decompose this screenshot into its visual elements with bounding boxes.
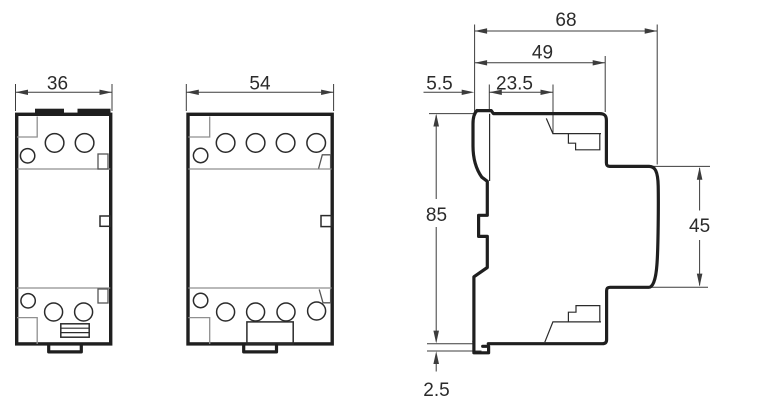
dim-label-54: 54 <box>249 74 271 95</box>
arrowhead-left <box>475 28 488 33</box>
din-foot <box>244 345 277 352</box>
arrowhead-down <box>433 331 439 344</box>
arrowhead-up <box>697 167 703 180</box>
top-tab-left <box>35 109 64 114</box>
dim-label-2-5: 2.5 <box>423 380 449 401</box>
top-tab-right <box>78 109 111 114</box>
dim-label-36: 36 <box>47 74 68 95</box>
arrowhead-right <box>645 28 658 33</box>
dim-label-5-5: 5.5 <box>426 74 452 95</box>
dimensional-drawing: 36 54 <box>0 0 766 404</box>
terminal-detail-top <box>546 118 601 149</box>
front-view-2pole: 36 <box>16 74 113 352</box>
dim-label-45: 45 <box>689 216 710 237</box>
dimension-depth-49: 49 <box>475 43 606 113</box>
dimension-offset-5-5: 5.5 <box>424 74 475 96</box>
front-view-4pole: 54 <box>186 74 333 352</box>
dim-label-23-5: 23.5 <box>496 74 533 95</box>
arrowhead-down <box>697 274 703 287</box>
arrowhead-up <box>433 114 439 127</box>
arrowhead <box>462 90 475 95</box>
din-rail-spring-profile <box>473 111 487 342</box>
arrowhead-left <box>16 90 29 95</box>
dimension-height-85: 85 <box>426 114 477 344</box>
dimension-width-36: 36 <box>16 74 113 112</box>
dim-label-85: 85 <box>426 205 447 226</box>
terminal-step <box>568 134 599 150</box>
terminal-detail-bottom <box>545 306 601 343</box>
extension-lines <box>475 25 658 165</box>
dim-label-68: 68 <box>555 10 576 31</box>
dim-label-49: 49 <box>532 43 553 64</box>
arrowhead-right <box>321 90 334 95</box>
body-outline <box>188 114 332 344</box>
dimension-width-54: 54 <box>186 74 333 112</box>
arrowhead-right <box>593 60 606 65</box>
side-profile-outline <box>477 111 658 344</box>
side-view: 68 49 5.5 23.5 <box>423 10 710 401</box>
arrowhead-left <box>475 60 488 65</box>
terminal-step <box>568 306 599 322</box>
terminal-cover-line <box>545 322 601 342</box>
arrowhead-left <box>186 90 199 95</box>
din-foot <box>49 345 82 352</box>
dimension-depth-23-5: 23.5 <box>489 74 553 134</box>
arrowhead-right <box>541 90 554 95</box>
arrowhead-up <box>433 351 439 364</box>
arrowhead-right <box>100 90 113 95</box>
terminal-cover-line <box>546 118 601 133</box>
